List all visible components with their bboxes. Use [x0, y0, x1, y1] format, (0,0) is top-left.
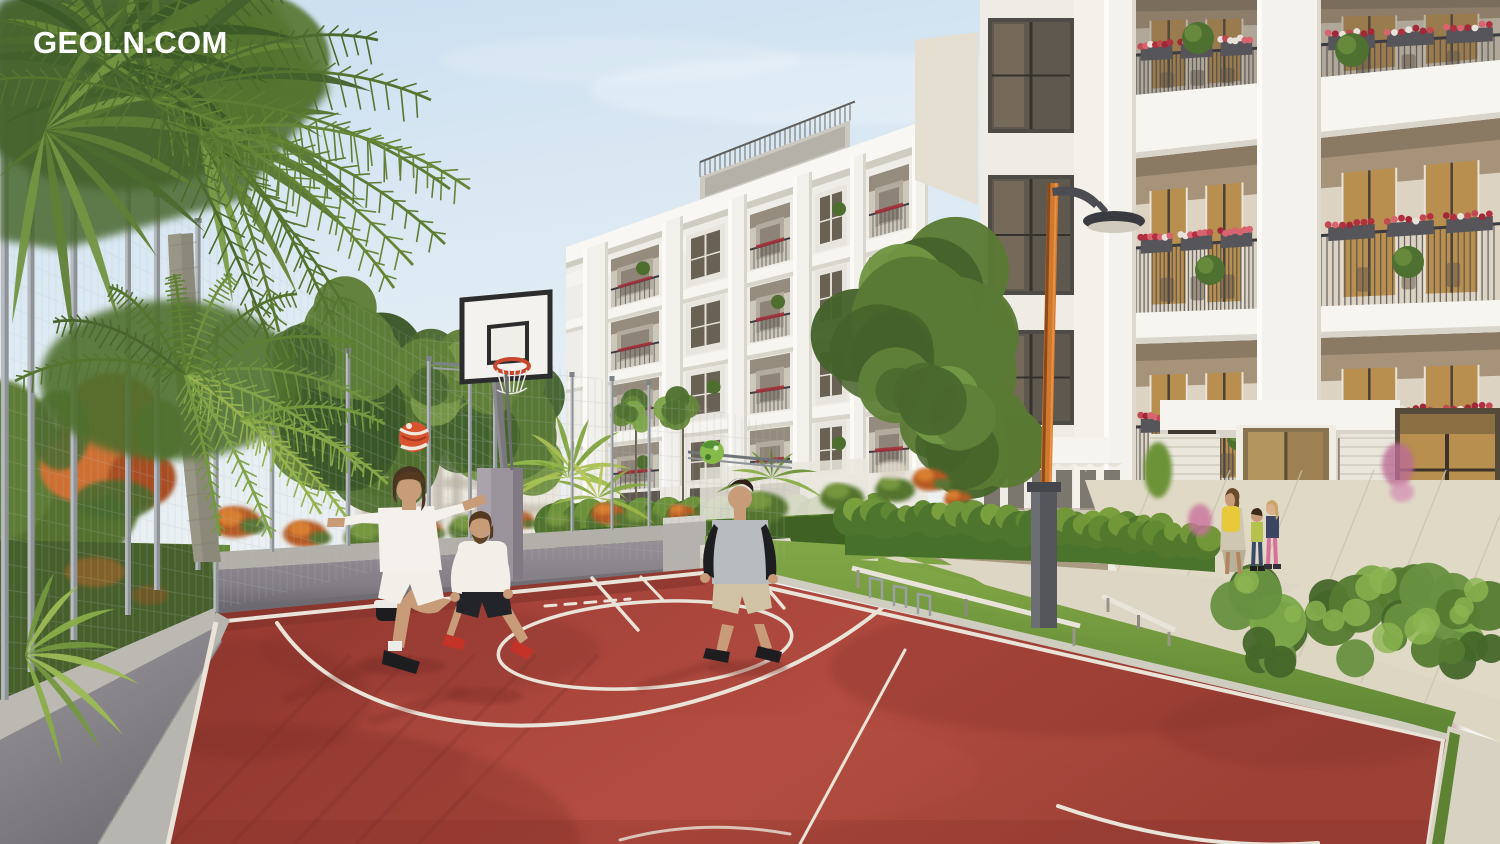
svg-text:GEOLN.COM: GEOLN.COM: [33, 25, 228, 60]
